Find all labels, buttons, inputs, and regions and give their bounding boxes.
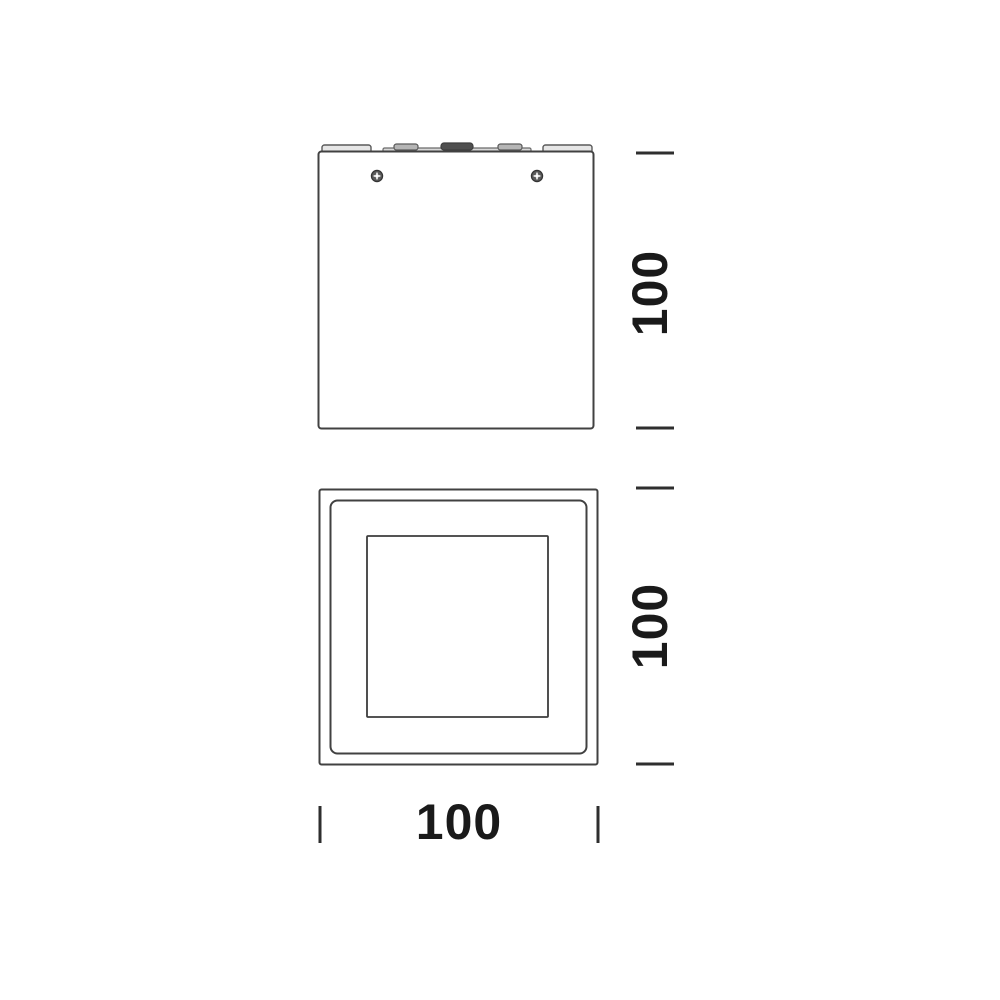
front-housing-body (319, 152, 594, 429)
phillips-screw-icon (371, 170, 382, 181)
technical-drawing-canvas: 100 100 100 (0, 0, 1000, 1000)
bottom-height-dimension-label: 100 (624, 556, 676, 696)
rail-bump-left (394, 144, 418, 150)
phillips-screw-icon (531, 170, 542, 181)
drawing-svg (0, 0, 1000, 1000)
bottom-width-dimension-label: 100 (389, 796, 529, 848)
bottom-lens-square (367, 536, 548, 717)
bottom-view (320, 490, 598, 765)
front-view (319, 143, 594, 429)
front-height-dimension-label: 100 (624, 223, 676, 363)
rail-connector-center (441, 143, 473, 150)
rail-bump-right (498, 144, 522, 150)
